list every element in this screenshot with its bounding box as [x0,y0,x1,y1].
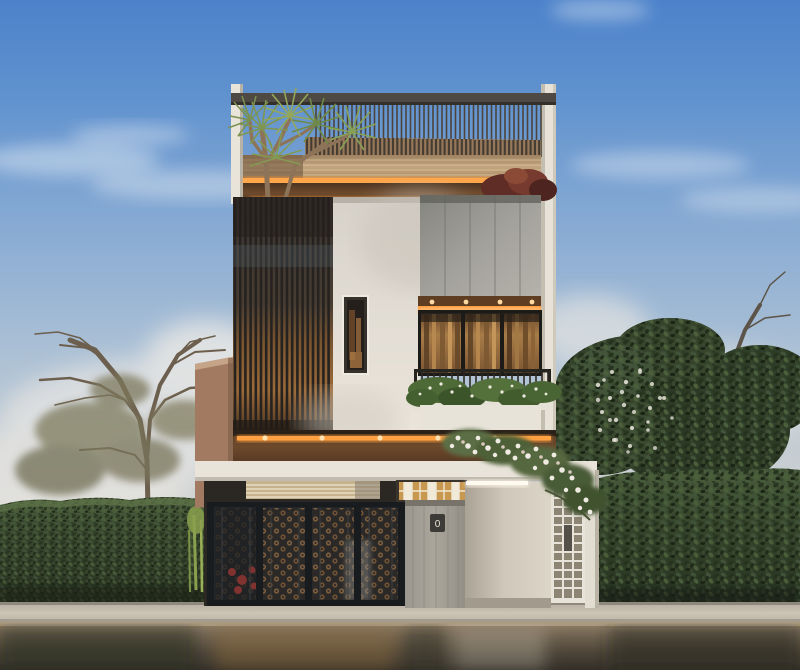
svg-text:0: 0 [435,519,441,530]
